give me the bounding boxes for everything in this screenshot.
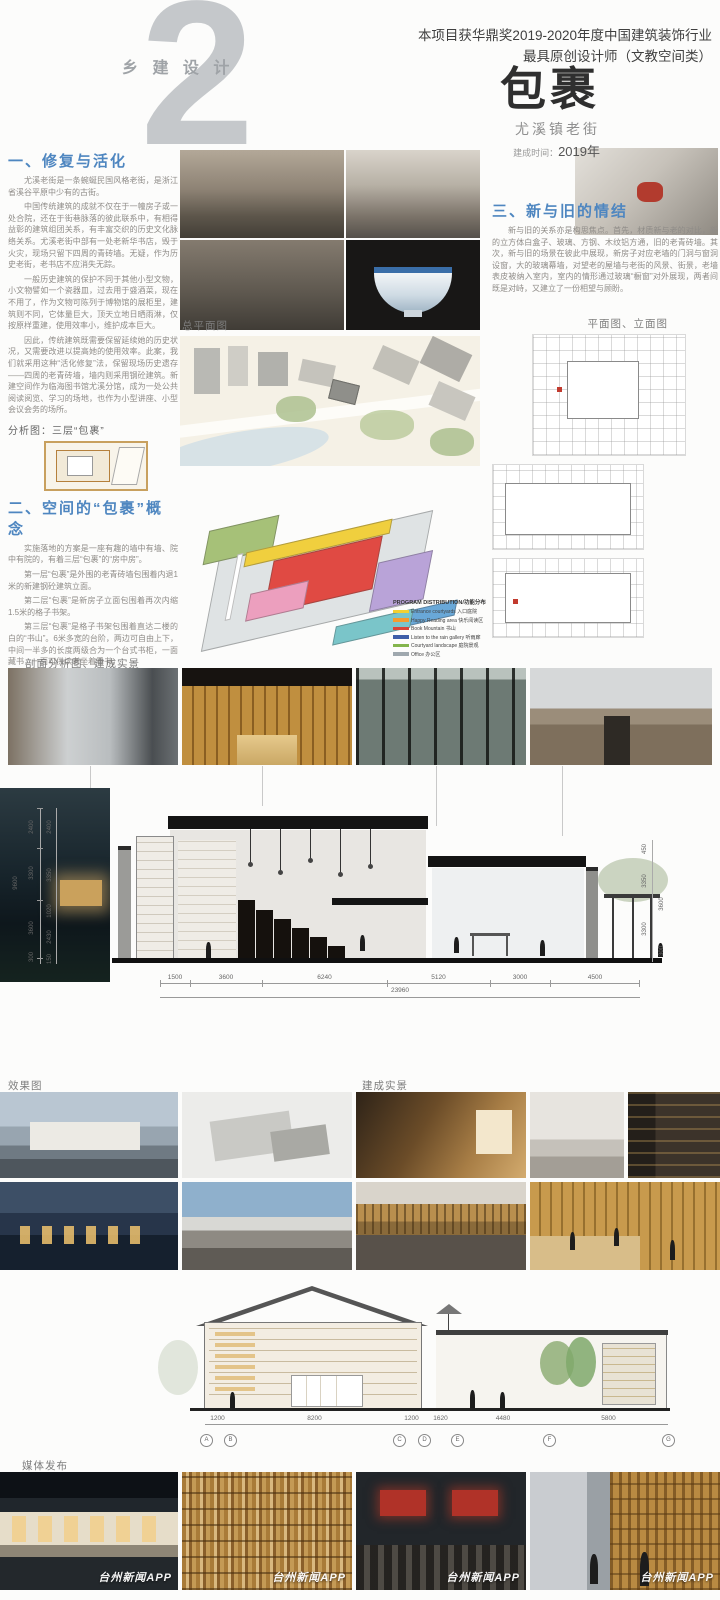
chapter-label: 乡 建 设 计 xyxy=(122,54,234,78)
step xyxy=(310,937,327,958)
section-roof-right xyxy=(428,856,586,867)
bowl-foot xyxy=(404,310,422,317)
diagram-slant-wing xyxy=(111,447,145,485)
dim-value: 1620 xyxy=(424,1415,457,1422)
chapter-number: 2 xyxy=(140,0,255,176)
floor-plan-drawing xyxy=(532,334,686,456)
section-roof-main xyxy=(168,816,428,829)
dim-value: 3600 xyxy=(29,913,35,943)
analysis-diagram xyxy=(44,441,148,491)
lower-section-drawing: 1200 8200 1200 1620 4480 5800 A B C D E … xyxy=(0,1282,720,1454)
table-leg xyxy=(472,936,474,956)
grid-bubble: C xyxy=(393,1434,406,1447)
dim-line xyxy=(160,983,640,984)
pendant-lamp xyxy=(280,829,281,871)
dim-value: 300 xyxy=(659,936,665,966)
site-green xyxy=(430,428,474,456)
photo-mullions xyxy=(356,668,526,765)
photo-white-room xyxy=(530,1092,624,1178)
built-time-year: 2019年 xyxy=(558,144,600,159)
legend-title: PROGRAM DISTRIBUTION/功能分布 xyxy=(393,598,488,606)
dim-tick xyxy=(387,980,388,987)
dim-line xyxy=(160,997,640,998)
dim-tick xyxy=(262,980,263,987)
section-shelf-grid xyxy=(178,840,236,958)
legend-row: Entrance courtyards 入口庭院 xyxy=(393,608,488,615)
legend-label: Happy Reading area 快乐阅读区 xyxy=(411,617,483,624)
red-artifact xyxy=(637,182,663,202)
house-body xyxy=(204,1322,422,1410)
elev-outline xyxy=(505,573,631,623)
step xyxy=(274,919,291,958)
table-leg xyxy=(506,936,508,956)
legend-label: Listen to the rain gallery 听雨廊 xyxy=(411,634,480,641)
person-silhouette xyxy=(500,1392,505,1408)
site-green xyxy=(276,396,316,422)
legend-row: Office 办公区 xyxy=(393,651,488,658)
dim-value: 450 xyxy=(642,834,648,864)
site-green xyxy=(360,410,414,440)
dim-value: 3350 xyxy=(47,860,53,890)
render-day-street xyxy=(0,1092,178,1178)
media-watermark: 台州新闻APP xyxy=(98,1569,172,1585)
photo-people-book-steps xyxy=(530,1182,720,1270)
person-silhouette xyxy=(570,1232,575,1250)
render-dusk xyxy=(0,1182,178,1270)
legend-swatch xyxy=(393,644,409,648)
plan-elevation-label: 平面图、立面图 xyxy=(588,316,669,331)
dim-tick xyxy=(37,900,43,901)
model-mass xyxy=(270,1124,330,1162)
legend-swatch xyxy=(393,635,409,639)
dim-line xyxy=(205,1424,668,1425)
photo-warm-interior xyxy=(356,1092,526,1178)
dim-line xyxy=(652,840,653,962)
dim-tick xyxy=(490,980,491,987)
award-text: 本项目获华鼎奖2019-2020年度中国建筑装饰行业 最具原创设计师（文教空间类… xyxy=(418,26,712,68)
gable-roof xyxy=(196,1286,428,1326)
shelf-stripes xyxy=(628,1092,720,1178)
legend-row: Happy Reading area 快乐阅读区 xyxy=(393,617,488,624)
umbrella-canopy xyxy=(436,1304,462,1314)
elevation-drawing-2 xyxy=(492,558,644,638)
legend-label: Office 办公区 xyxy=(411,651,440,658)
pergola-column xyxy=(612,898,614,958)
grid-bubble: F xyxy=(543,1434,556,1447)
person-silhouette xyxy=(360,935,365,951)
bright-window xyxy=(476,1110,512,1154)
warm-glow xyxy=(60,880,102,906)
plan-red-mark xyxy=(557,387,562,392)
tree-outside xyxy=(158,1340,198,1395)
lit-windows xyxy=(20,1226,150,1244)
media-watermark: 台州新闻APP xyxy=(446,1569,520,1585)
built-time-label: 建成时间： xyxy=(513,148,558,158)
section-old-wall-right xyxy=(586,867,598,962)
legend-swatch xyxy=(393,618,409,622)
dim-tick xyxy=(37,848,43,849)
built-photos-label: 建成实景 xyxy=(362,1078,408,1093)
wood-slats xyxy=(356,1204,526,1234)
dim-tick xyxy=(639,980,640,987)
dim-value: 8200 xyxy=(230,1415,399,1422)
dim-value: 1200 xyxy=(399,1415,424,1422)
amber-books xyxy=(215,1331,255,1391)
steps-mass xyxy=(530,1236,640,1270)
section1-paragraph: 因此，传统建筑既需要保留延续她的历史状况，又需要改进以提高她的使用效率。此案，我… xyxy=(8,335,178,416)
photo-dark-ceiling xyxy=(182,668,352,686)
site-building xyxy=(258,352,288,386)
section2-paragraph: 第二层“包裹”是新房子立面包围着再次内缩1.5米的格子书架。 xyxy=(8,595,178,618)
dim-tick xyxy=(37,958,43,959)
legend-label: Book Mountain 书山 xyxy=(411,625,456,632)
dim-value: 300 xyxy=(29,942,35,972)
dim-line xyxy=(40,808,41,964)
legend-swatch xyxy=(393,610,409,614)
program-legend: PROGRAM DISTRIBUTION/功能分布 Entrance court… xyxy=(393,598,488,659)
section1-paragraph: 中国传统建筑的成就不仅在于一幢房子或一处合院，还在于街巷脉落的彼此联系中，有相得… xyxy=(8,201,178,271)
elevation-drawing-1 xyxy=(492,464,644,550)
model-photo-sky xyxy=(182,1182,352,1270)
section2-heading: 二、空间的“包裹”概念 xyxy=(8,497,178,539)
section-old-wall-left xyxy=(118,846,131,962)
photo-stairs xyxy=(237,735,297,765)
photo-doorway xyxy=(604,716,630,765)
site-building xyxy=(298,359,336,388)
dim-tick xyxy=(160,980,161,987)
dim-value: 1500 xyxy=(160,974,190,981)
site-building xyxy=(194,348,220,394)
step xyxy=(256,910,273,958)
dim-total: 23960 xyxy=(160,987,640,994)
elev-red-mark xyxy=(513,599,518,604)
photo-old-brick-wall xyxy=(530,668,712,765)
lit-windows xyxy=(12,1516,162,1542)
elev-outline xyxy=(505,483,631,535)
site-building xyxy=(372,345,419,385)
dim-value: 2400 xyxy=(29,812,35,842)
site-plan-label: 总平面图 xyxy=(182,318,228,333)
dim-tick xyxy=(37,808,43,809)
grid-bubble: G xyxy=(662,1434,675,1447)
page-title: 包裹 xyxy=(500,64,600,115)
white-building xyxy=(30,1122,140,1150)
person-silhouette xyxy=(590,1554,598,1584)
tree-inside xyxy=(566,1337,596,1387)
legend-label: Entrance courtyards 入口庭院 xyxy=(411,608,477,615)
project-subtitle: 尤溪镇老街 xyxy=(500,119,600,139)
right-text-column: 三、新与旧的情结 新与旧的关系亦是构思焦点。首先，材质新与老的对比，新的立方体白… xyxy=(492,200,718,298)
media-watermark: 台州新闻APP xyxy=(640,1569,714,1585)
presentation-board: 2 乡 建 设 计 本项目获华鼎奖2019-2020年度中国建筑装饰行业 最具原… xyxy=(0,0,720,1600)
table xyxy=(470,933,510,936)
photo-dark-shelves xyxy=(628,1092,720,1178)
person-silhouette xyxy=(670,1240,675,1260)
dim-value: 3600 xyxy=(659,889,665,919)
media-photo-bookshelf-wall: 台州新闻APP xyxy=(182,1472,352,1590)
site-plan-drawing xyxy=(180,336,480,466)
renders-label: 效果图 xyxy=(8,1078,43,1093)
white-steps xyxy=(291,1375,363,1407)
dim-value: 3300 xyxy=(29,858,35,888)
section2-paragraph: 实施落地的方案是一座有趣的墙中有墙、院中有院的，有着三层“包裹”的“房中房”。 xyxy=(8,543,178,566)
legend-row: Book Mountain 书山 xyxy=(393,625,488,632)
section3-heading: 三、新与旧的情结 xyxy=(492,200,718,221)
model-photo-white xyxy=(182,1092,352,1178)
pendant-lamp xyxy=(250,829,251,863)
pendant-lamp xyxy=(310,829,311,859)
grid-bubble: E xyxy=(451,1434,464,1447)
dim-value: 1200 xyxy=(205,1415,230,1422)
pergola-column xyxy=(632,898,634,958)
dim-value: 4500 xyxy=(550,974,640,981)
shelf-block xyxy=(602,1343,656,1405)
step xyxy=(292,928,309,958)
media-label: 媒体发布 xyxy=(22,1458,68,1473)
site-building-highlight xyxy=(328,379,360,405)
umbrella-pole xyxy=(448,1314,449,1330)
bowl-body xyxy=(374,267,452,313)
photo-old-street-view xyxy=(346,150,480,238)
photo-courtyard-wood-ceiling xyxy=(356,1182,526,1270)
program-axon-diagram: PROGRAM DISTRIBUTION/功能分布 Entrance court… xyxy=(185,466,485,648)
person-silhouette xyxy=(614,1228,619,1246)
media-photo-readers: 台州新闻APP xyxy=(530,1472,720,1590)
legend-swatch xyxy=(393,627,409,631)
media-watermark: 台州新闻APP xyxy=(272,1569,346,1585)
dim-tick xyxy=(550,980,551,987)
dim-value: 3300 xyxy=(642,914,648,944)
built-time: 建成时间：2019年 xyxy=(500,141,600,161)
plan-core xyxy=(567,361,639,419)
section3-paragraph: 新与旧的关系亦是构思焦点。首先，材质新与老的对比，新的立方体白盒子、玻璃、方钢、… xyxy=(492,225,718,295)
diagram-core xyxy=(67,456,93,476)
red-screen xyxy=(452,1490,498,1516)
step xyxy=(328,946,345,958)
photo-corridor xyxy=(8,668,178,765)
book-mountain-steps xyxy=(238,900,346,958)
award-line-1: 本项目获华鼎奖2019-2020年度中国建筑装饰行业 xyxy=(418,26,712,47)
ground-line xyxy=(190,1408,670,1411)
section-bookshelf-wall xyxy=(136,836,174,960)
person-silhouette xyxy=(230,1392,235,1408)
left-text-column: 一、修复与活化 尤溪老街是一条蜿蜒民国风格老街，是浙江省溪谷平原中少有的古街。 … xyxy=(8,150,178,709)
project-title-block: 包裹 尤溪镇老街 建成时间：2019年 xyxy=(500,64,600,161)
grid-bubble: B xyxy=(224,1434,237,1447)
legend-label: Courtyard landscape 庭院景观 xyxy=(411,642,479,649)
dim-value: 4480 xyxy=(457,1415,549,1422)
photo-book-mountain-interior xyxy=(182,668,352,765)
ground-line xyxy=(112,958,662,963)
dim-value: 150 xyxy=(47,944,53,974)
dim-value: 3350 xyxy=(642,866,648,896)
dim-value: 6240 xyxy=(262,974,387,981)
media-photo-conference: 台州新闻APP xyxy=(356,1472,526,1590)
grid-bubble: A xyxy=(200,1434,213,1447)
dim-value: 5800 xyxy=(549,1415,668,1422)
dim-value: 3000 xyxy=(490,974,550,981)
dim-value: 5120 xyxy=(387,974,490,981)
dim-value: 3600 xyxy=(190,974,262,981)
dimension-chain-bottom: 1500 3600 6240 5120 3000 4500 23960 xyxy=(160,974,640,1008)
pendant-lamp xyxy=(340,829,341,873)
person-silhouette xyxy=(540,940,545,956)
dim-value: 2400 xyxy=(47,812,53,842)
dim-line xyxy=(56,808,57,964)
analysis-diagram-label: 分析图：三层“包裹” xyxy=(8,422,178,437)
site-building xyxy=(428,381,475,421)
step xyxy=(238,900,255,958)
grid-bubble: D xyxy=(418,1434,431,1447)
photo-glass-facade xyxy=(356,668,526,765)
photo-brick-courtyard xyxy=(180,240,344,330)
legend-row: Listen to the rain gallery 听雨廊 xyxy=(393,634,488,641)
site-building xyxy=(420,336,473,382)
site-building xyxy=(228,346,248,386)
legend-swatch xyxy=(393,652,409,656)
pendant-lamp xyxy=(370,829,371,865)
person-silhouette xyxy=(206,942,211,958)
red-screen xyxy=(380,1490,426,1516)
section-mezz-slab xyxy=(332,898,428,905)
media-photo-night-storefront: 台州新闻APP xyxy=(0,1472,178,1590)
dim-total-left: 9600 xyxy=(13,868,19,898)
person-silhouette xyxy=(454,937,459,953)
section1-paragraph: 一般历史建筑的保护不同于其他小型文物，小文物譬如一个瓷器皿，过去用于盛酒菜，现在… xyxy=(8,274,178,332)
legend-row: Courtyard landscape 庭院景观 xyxy=(393,642,488,649)
photo-porcelain-bowl xyxy=(346,240,480,330)
person-silhouette xyxy=(470,1390,475,1408)
section2-paragraph: 第一层“包裹”是外围的老青砖墙包围着内退1米的新建钢砼建筑立面。 xyxy=(8,569,178,592)
dim-tick xyxy=(190,980,191,987)
